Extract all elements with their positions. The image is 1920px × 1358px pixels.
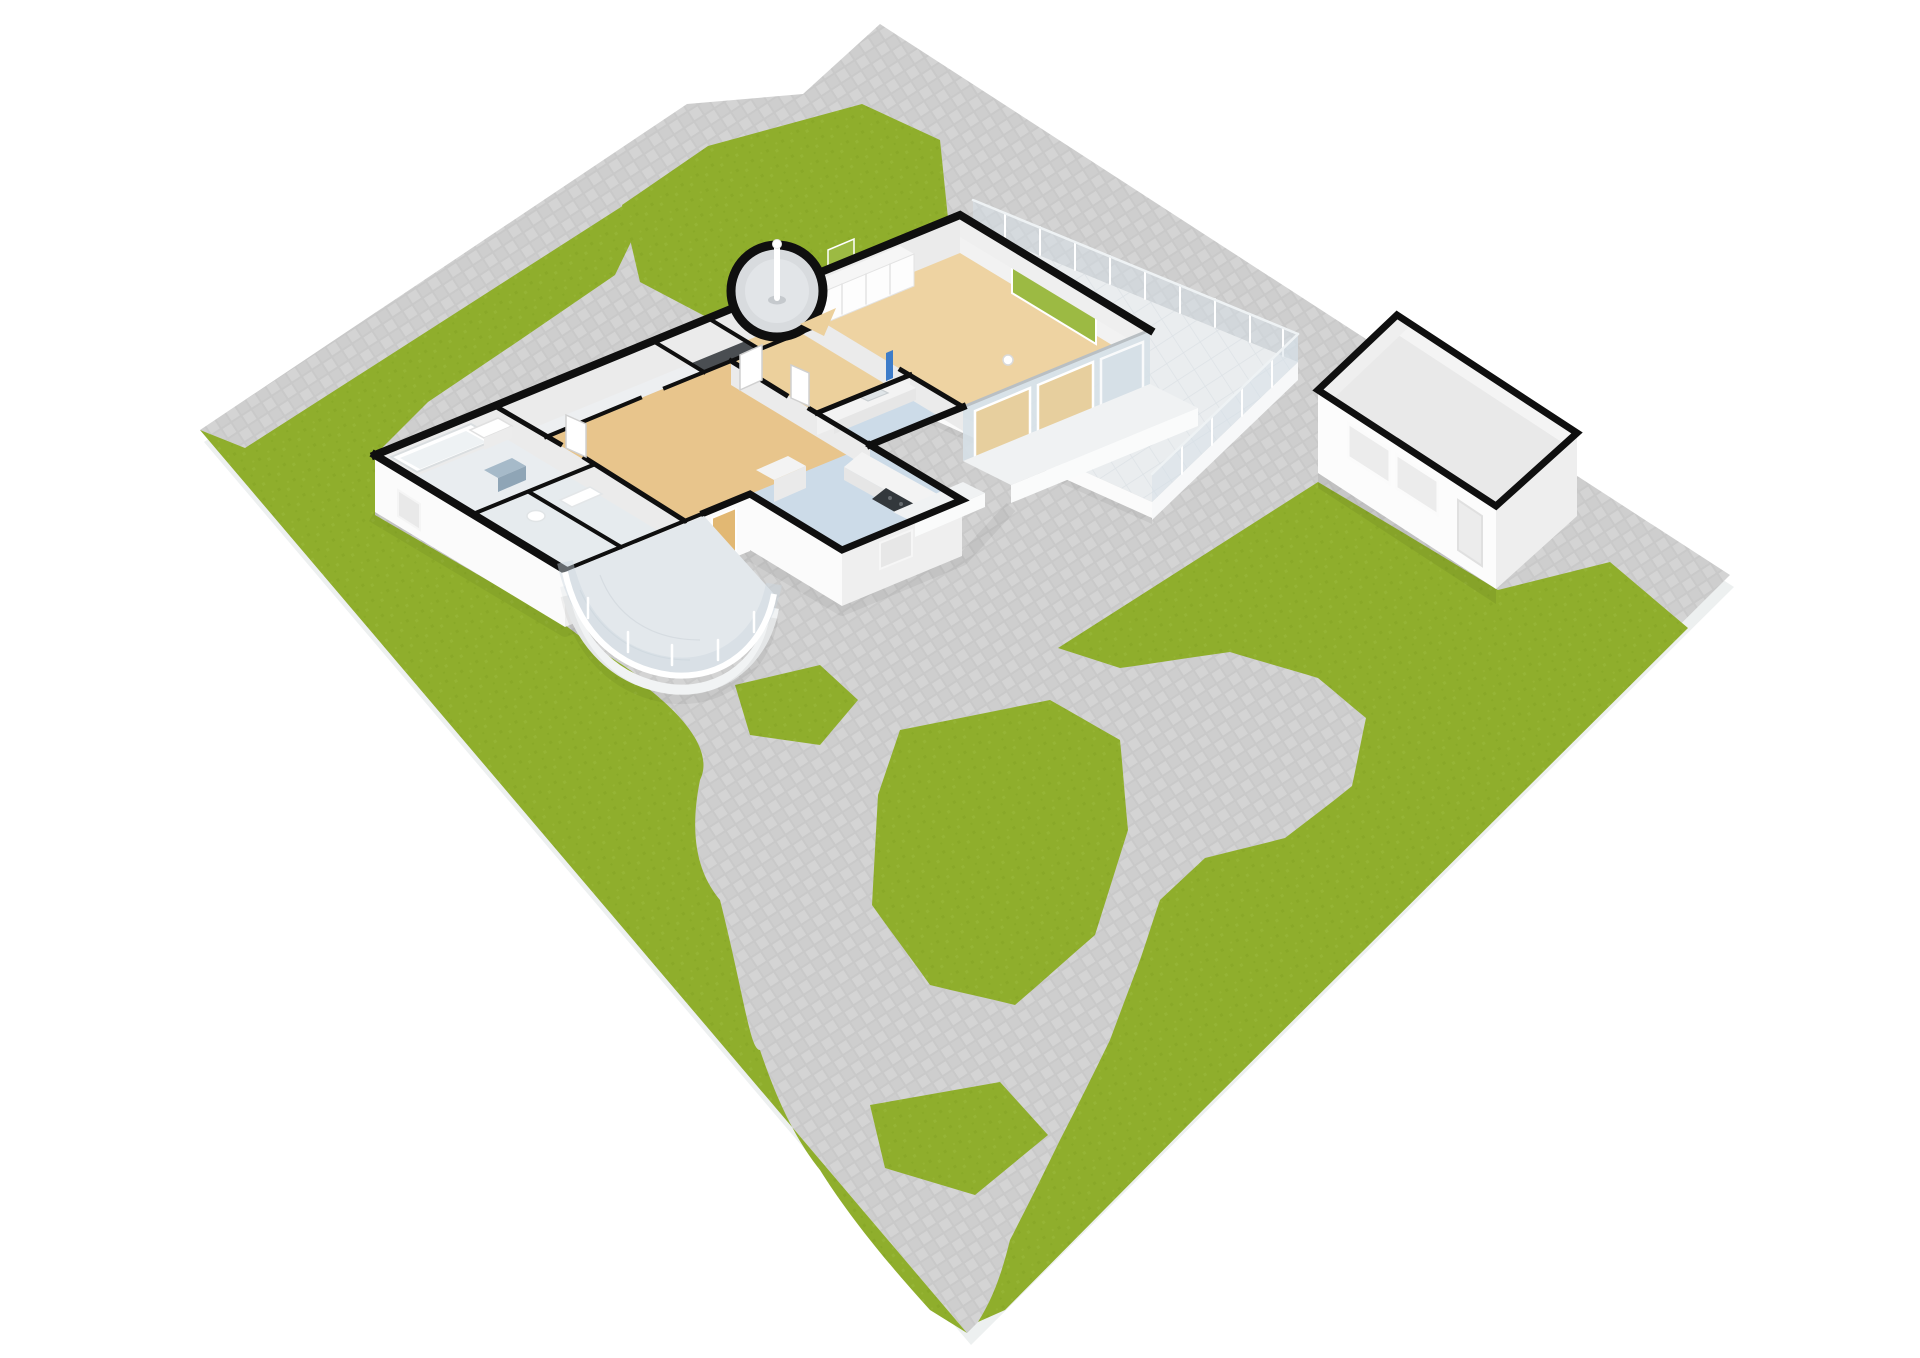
burner	[888, 496, 892, 500]
turret-pole-cap	[773, 240, 782, 249]
accent-blue-door[interactable]	[886, 350, 893, 381]
burner	[899, 502, 903, 506]
floorplan-3d-viewport[interactable]	[0, 0, 1920, 1358]
site-render-canvas[interactable]	[0, 0, 1920, 1358]
pendant-lamp[interactable]	[1003, 355, 1013, 365]
door-slab[interactable]	[791, 365, 809, 406]
wc-toilet[interactable]	[527, 511, 545, 522]
